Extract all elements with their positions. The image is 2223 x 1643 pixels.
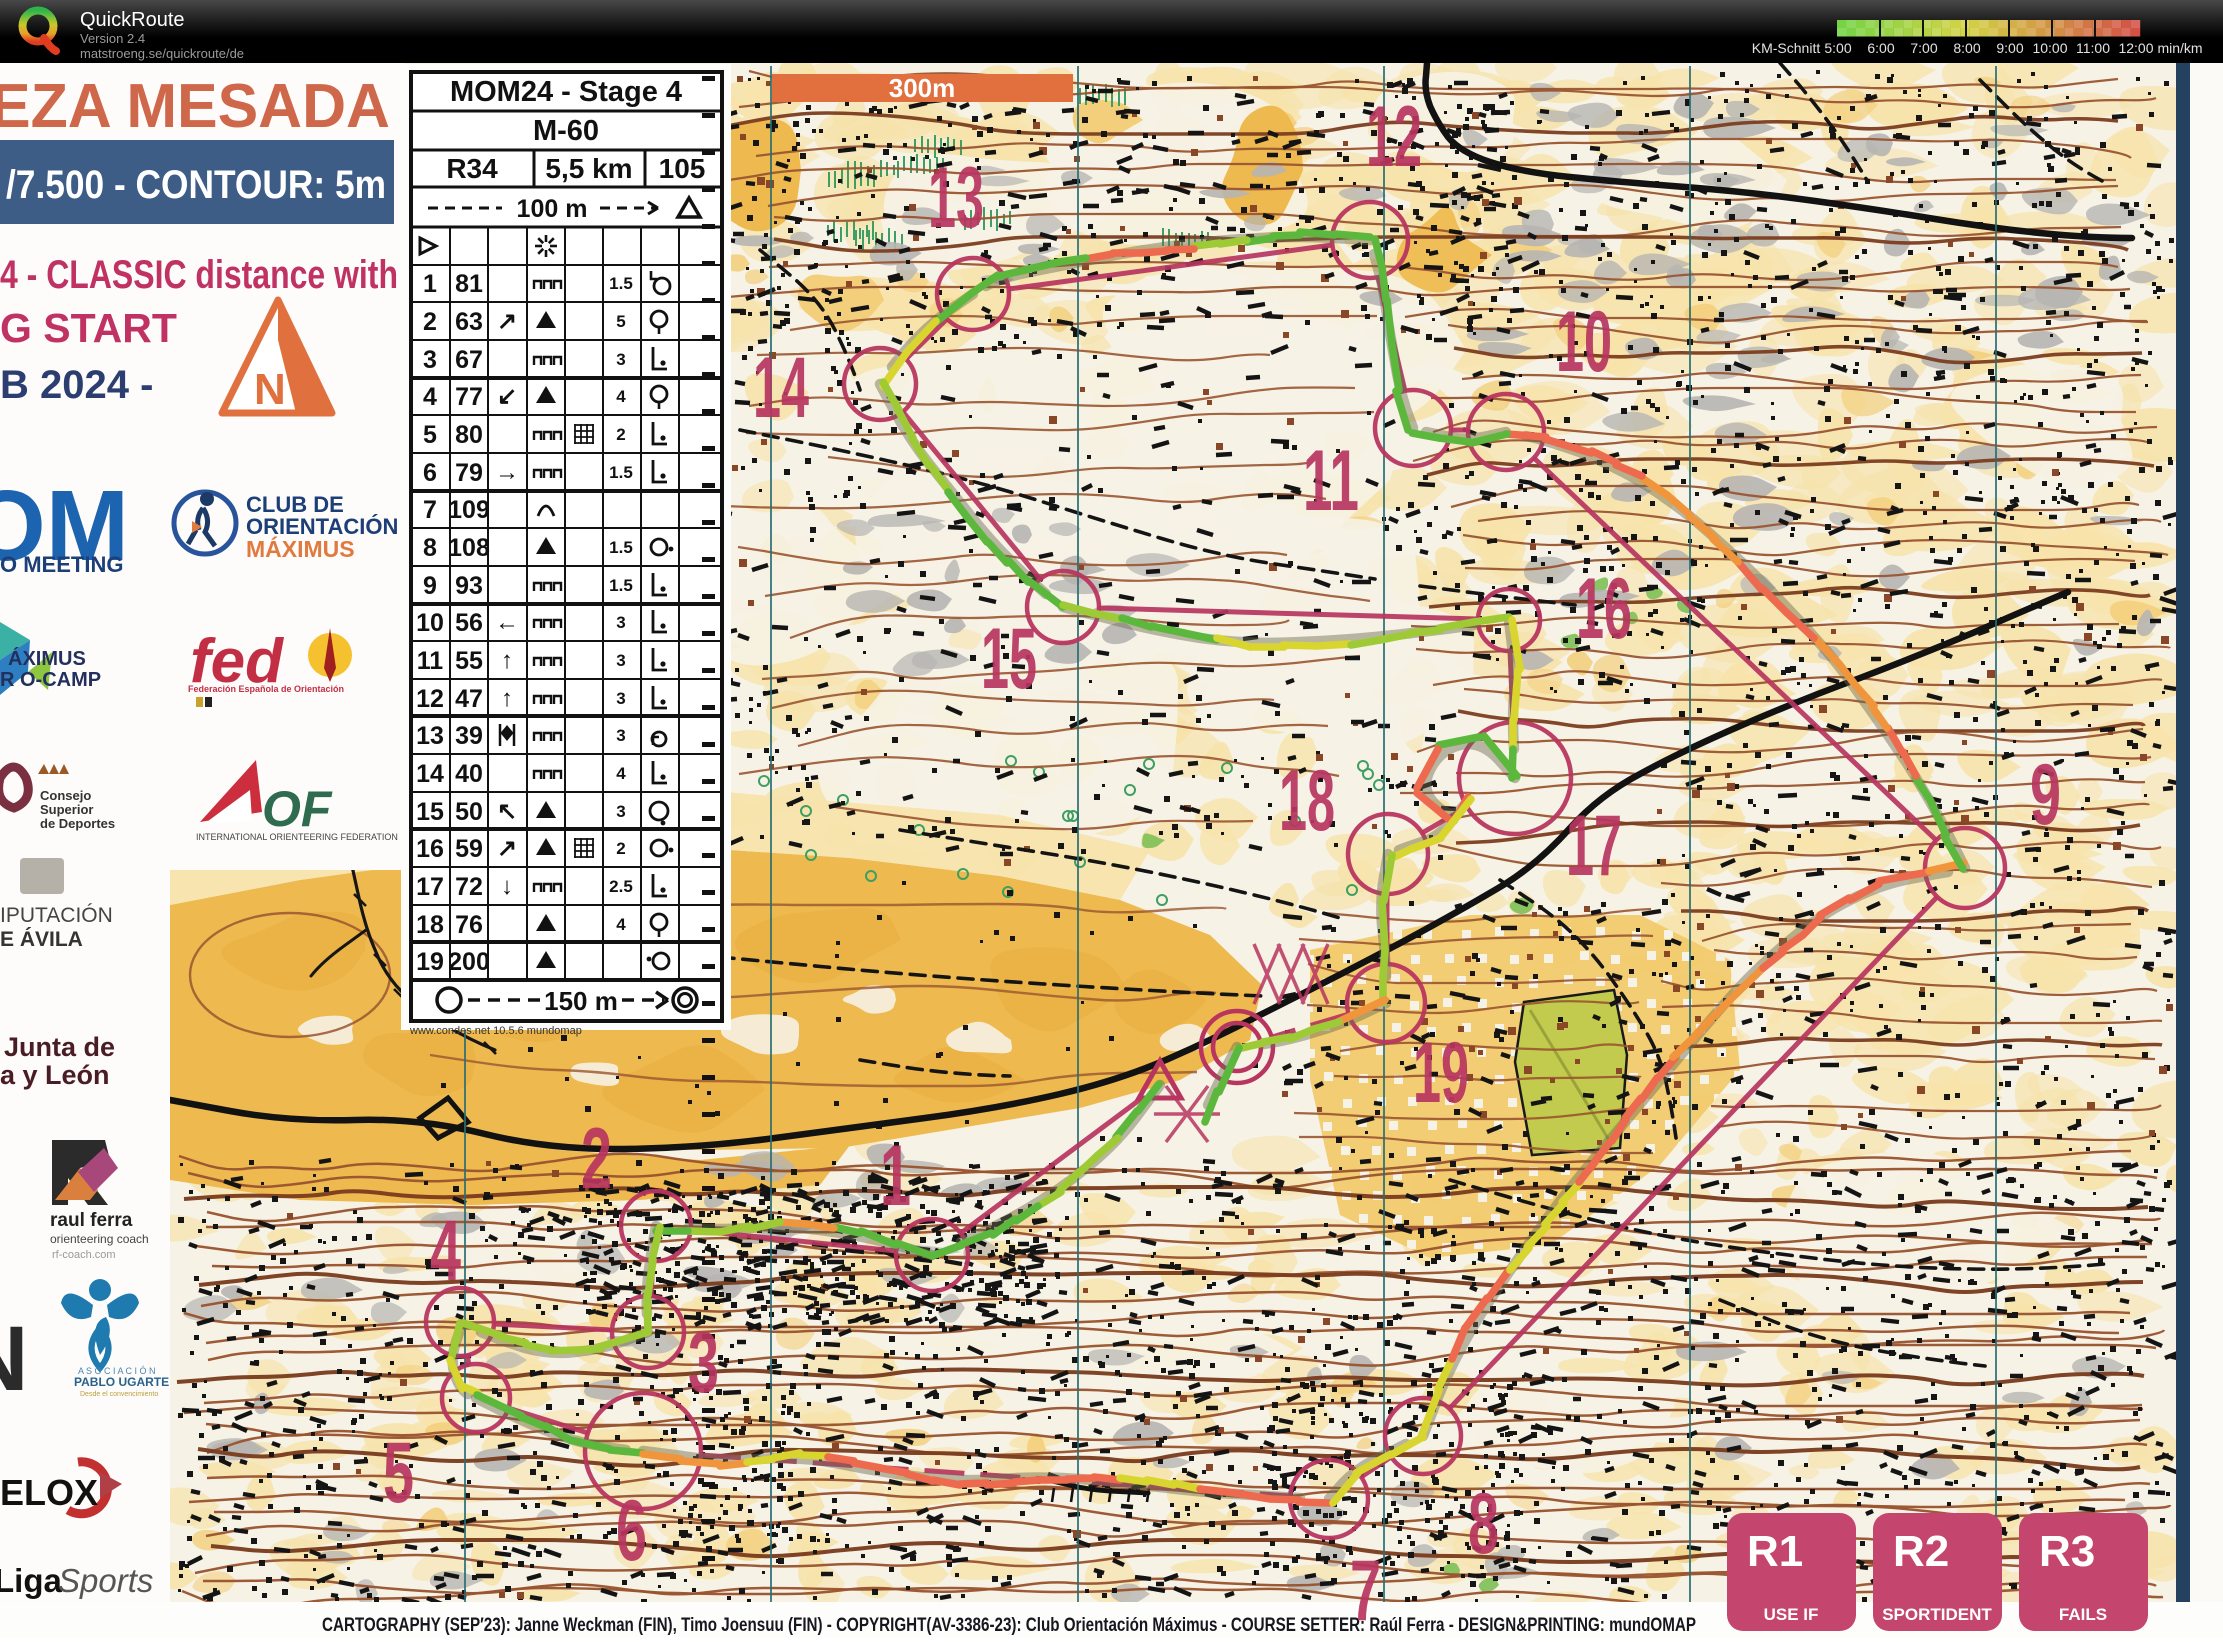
svg-text:11: 11: [1303, 433, 1359, 529]
svg-text:9: 9: [2030, 747, 2061, 843]
svg-text:12: 12: [1366, 89, 1422, 185]
svg-text:IPUTACIÓN: IPUTACIÓN: [0, 904, 113, 927]
svg-text:3: 3: [688, 1315, 719, 1411]
svg-text:12: 12: [416, 685, 444, 713]
svg-text:3: 3: [616, 726, 625, 745]
svg-text:rf-coach.com: rf-coach.com: [52, 1249, 116, 1261]
svg-text:47: 47: [455, 685, 483, 713]
svg-text:10:00: 10:00: [2032, 40, 2067, 56]
svg-text:50: 50: [455, 798, 483, 826]
svg-text:13: 13: [928, 150, 984, 246]
svg-text:4 - CLASSIC distance with: 4 - CLASSIC distance with: [0, 253, 398, 297]
svg-text:19: 19: [416, 948, 444, 976]
svg-text:N: N: [0, 1308, 28, 1410]
svg-text:1.5: 1.5: [609, 576, 633, 595]
svg-text:R3: R3: [2039, 1527, 2095, 1576]
svg-text:↗: ↗: [497, 308, 517, 335]
svg-text:1: 1: [880, 1128, 911, 1224]
svg-text:2: 2: [616, 425, 625, 444]
svg-text:4: 4: [423, 383, 437, 411]
svg-text:5: 5: [383, 1425, 414, 1521]
svg-text:16: 16: [416, 835, 444, 863]
svg-text:↑: ↑: [501, 685, 513, 712]
svg-text:7: 7: [1350, 1543, 1381, 1638]
svg-text:USE IF: USE IF: [1764, 1605, 1819, 1624]
svg-text:14: 14: [416, 760, 444, 788]
svg-text:6: 6: [616, 1483, 647, 1579]
svg-text:9:00: 9:00: [1996, 40, 2023, 56]
svg-text:14: 14: [753, 340, 809, 436]
svg-text:72: 72: [455, 873, 483, 901]
svg-text:6: 6: [423, 459, 437, 487]
svg-text:3: 3: [616, 651, 625, 670]
svg-text:15: 15: [416, 798, 444, 826]
svg-text:3: 3: [616, 350, 625, 369]
svg-text:200: 200: [448, 948, 490, 976]
svg-text:O MEETING: O MEETING: [0, 552, 123, 577]
svg-text:min/km: min/km: [2157, 40, 2202, 56]
svg-text:Consejo: Consejo: [40, 788, 91, 803]
svg-text:SPORTIDENT: SPORTIDENT: [1882, 1605, 1992, 1624]
svg-text:18: 18: [416, 911, 444, 939]
svg-text:5: 5: [423, 421, 437, 449]
svg-text:105: 105: [659, 153, 706, 184]
svg-text:3: 3: [616, 689, 625, 708]
svg-text:Liga: Liga: [0, 1562, 62, 1599]
svg-text:EZA MESADA: EZA MESADA: [0, 72, 390, 141]
svg-text:3: 3: [423, 346, 437, 374]
svg-text:6:00: 6:00: [1867, 40, 1894, 56]
svg-text:2: 2: [423, 308, 437, 336]
svg-text:40: 40: [455, 760, 483, 788]
svg-text:→: →: [495, 459, 519, 486]
svg-text:81: 81: [455, 270, 483, 298]
svg-text:Superior: Superior: [40, 802, 93, 817]
svg-text:150 m: 150 m: [544, 986, 618, 1016]
svg-text:1: 1: [423, 270, 437, 298]
svg-text:67: 67: [455, 346, 483, 374]
svg-text:76: 76: [455, 911, 483, 939]
svg-text:orienteering coach: orienteering coach: [50, 1232, 149, 1246]
svg-text:de Deportes: de Deportes: [40, 816, 115, 831]
svg-text:93: 93: [455, 572, 483, 600]
svg-text:3: 3: [616, 802, 625, 821]
svg-text:18: 18: [1279, 753, 1335, 849]
svg-text:CARTOGRAPHY (SEP′23): Janne We: CARTOGRAPHY (SEP′23): Janne Weckman (FIN…: [322, 1615, 1696, 1636]
svg-text:16: 16: [1576, 561, 1632, 657]
svg-text:1.5: 1.5: [609, 538, 633, 557]
svg-text:3: 3: [616, 613, 625, 632]
svg-text:4: 4: [616, 915, 626, 934]
svg-text:Desde el convencimiento: Desde el convencimiento: [80, 1391, 158, 1398]
svg-text:OF: OF: [262, 781, 333, 837]
svg-text:←: ←: [495, 609, 519, 636]
svg-text:↙: ↙: [497, 383, 517, 410]
svg-text:MOM24 - Stage 4: MOM24 - Stage 4: [450, 76, 682, 108]
svg-text:MÁXIMUS: MÁXIMUS: [246, 535, 355, 562]
svg-text:/7.500 - CONTOUR: 5m: /7.500 - CONTOUR: 5m: [6, 163, 386, 207]
svg-text:QuickRoute: QuickRoute: [80, 9, 185, 31]
svg-text:1.5: 1.5: [609, 274, 633, 293]
svg-text:108: 108: [448, 534, 490, 562]
svg-text:ELOX: ELOX: [0, 1472, 98, 1513]
svg-text:↑: ↑: [501, 647, 513, 674]
svg-text:15: 15: [981, 611, 1037, 707]
svg-text:39: 39: [455, 722, 483, 750]
svg-text:R O-CAMP: R O-CAMP: [0, 669, 101, 691]
svg-text:Sports: Sports: [58, 1562, 153, 1599]
svg-text:↓: ↓: [501, 873, 513, 900]
svg-text:17: 17: [416, 873, 444, 901]
svg-text:4: 4: [616, 764, 626, 783]
svg-text:2: 2: [616, 839, 625, 858]
svg-text:7:00: 7:00: [1910, 40, 1937, 56]
svg-text:FAILS: FAILS: [2059, 1605, 2107, 1624]
svg-text:↗: ↗: [497, 835, 517, 862]
svg-text:M-60: M-60: [533, 115, 599, 147]
svg-text:5,5 km: 5,5 km: [545, 153, 632, 184]
svg-text:G START: G START: [0, 305, 177, 351]
svg-text:17: 17: [1566, 798, 1622, 894]
svg-text:2: 2: [581, 1111, 612, 1207]
svg-text:300m: 300m: [889, 73, 956, 103]
svg-text:B 2024 -: B 2024 -: [0, 363, 153, 407]
svg-text:9: 9: [423, 572, 437, 600]
svg-text:5: 5: [616, 312, 625, 331]
svg-text:INTERNATIONAL ORIENTEERING FED: INTERNATIONAL ORIENTEERING FEDERATION: [196, 832, 398, 842]
svg-text:ÁXIMUS: ÁXIMUS: [8, 647, 86, 670]
svg-text:↖: ↖: [497, 798, 517, 825]
svg-text:www.condes.net 10.5.6 mundomap: www.condes.net 10.5.6 mundomap: [409, 1025, 582, 1037]
svg-text:109: 109: [448, 496, 490, 524]
svg-text:7: 7: [423, 496, 437, 524]
svg-text:R1: R1: [1747, 1527, 1803, 1576]
svg-text:63: 63: [455, 308, 483, 336]
svg-text:10: 10: [416, 609, 444, 637]
svg-text:Junta de: Junta de: [4, 1032, 115, 1062]
svg-text:5:00: 5:00: [1824, 40, 1851, 56]
svg-text:55: 55: [455, 647, 483, 675]
svg-text:19: 19: [1413, 1025, 1469, 1121]
svg-text:KM-Schnitt: KM-Schnitt: [1752, 40, 1821, 56]
svg-text:77: 77: [455, 383, 483, 411]
svg-text:12:00: 12:00: [2118, 40, 2153, 56]
svg-text:R2: R2: [1893, 1527, 1949, 1576]
svg-text:10: 10: [1556, 294, 1612, 390]
svg-text:4: 4: [616, 387, 626, 406]
svg-text:4: 4: [430, 1203, 461, 1299]
svg-text:raul ferra: raul ferra: [50, 1210, 133, 1231]
svg-text:79: 79: [455, 459, 483, 487]
svg-text:8: 8: [1468, 1476, 1499, 1572]
svg-text:56: 56: [455, 609, 483, 637]
svg-text:Federación Española de Orienta: Federación Española de Orientación: [188, 684, 344, 694]
svg-text:E ÁVILA: E ÁVILA: [0, 928, 83, 951]
svg-text:Version 2.4: Version 2.4: [80, 31, 145, 46]
svg-text:a y León: a y León: [0, 1060, 110, 1090]
svg-text:N: N: [254, 365, 286, 414]
svg-text:100 m: 100 m: [517, 195, 588, 223]
svg-text:11:00: 11:00: [2076, 40, 2110, 56]
svg-text:59: 59: [455, 835, 483, 863]
svg-text:13: 13: [416, 722, 444, 750]
svg-text:2.5: 2.5: [609, 877, 633, 896]
svg-text:80: 80: [455, 421, 483, 449]
svg-text:matstroeng.se/quickroute/de: matstroeng.se/quickroute/de: [80, 46, 244, 61]
svg-text:8:00: 8:00: [1953, 40, 1980, 56]
svg-text:PABLO UGARTE: PABLO UGARTE: [74, 1375, 169, 1389]
svg-text:R34: R34: [446, 153, 498, 184]
svg-text:8: 8: [423, 534, 437, 562]
svg-text:11: 11: [417, 647, 444, 675]
svg-text:1.5: 1.5: [609, 463, 633, 482]
